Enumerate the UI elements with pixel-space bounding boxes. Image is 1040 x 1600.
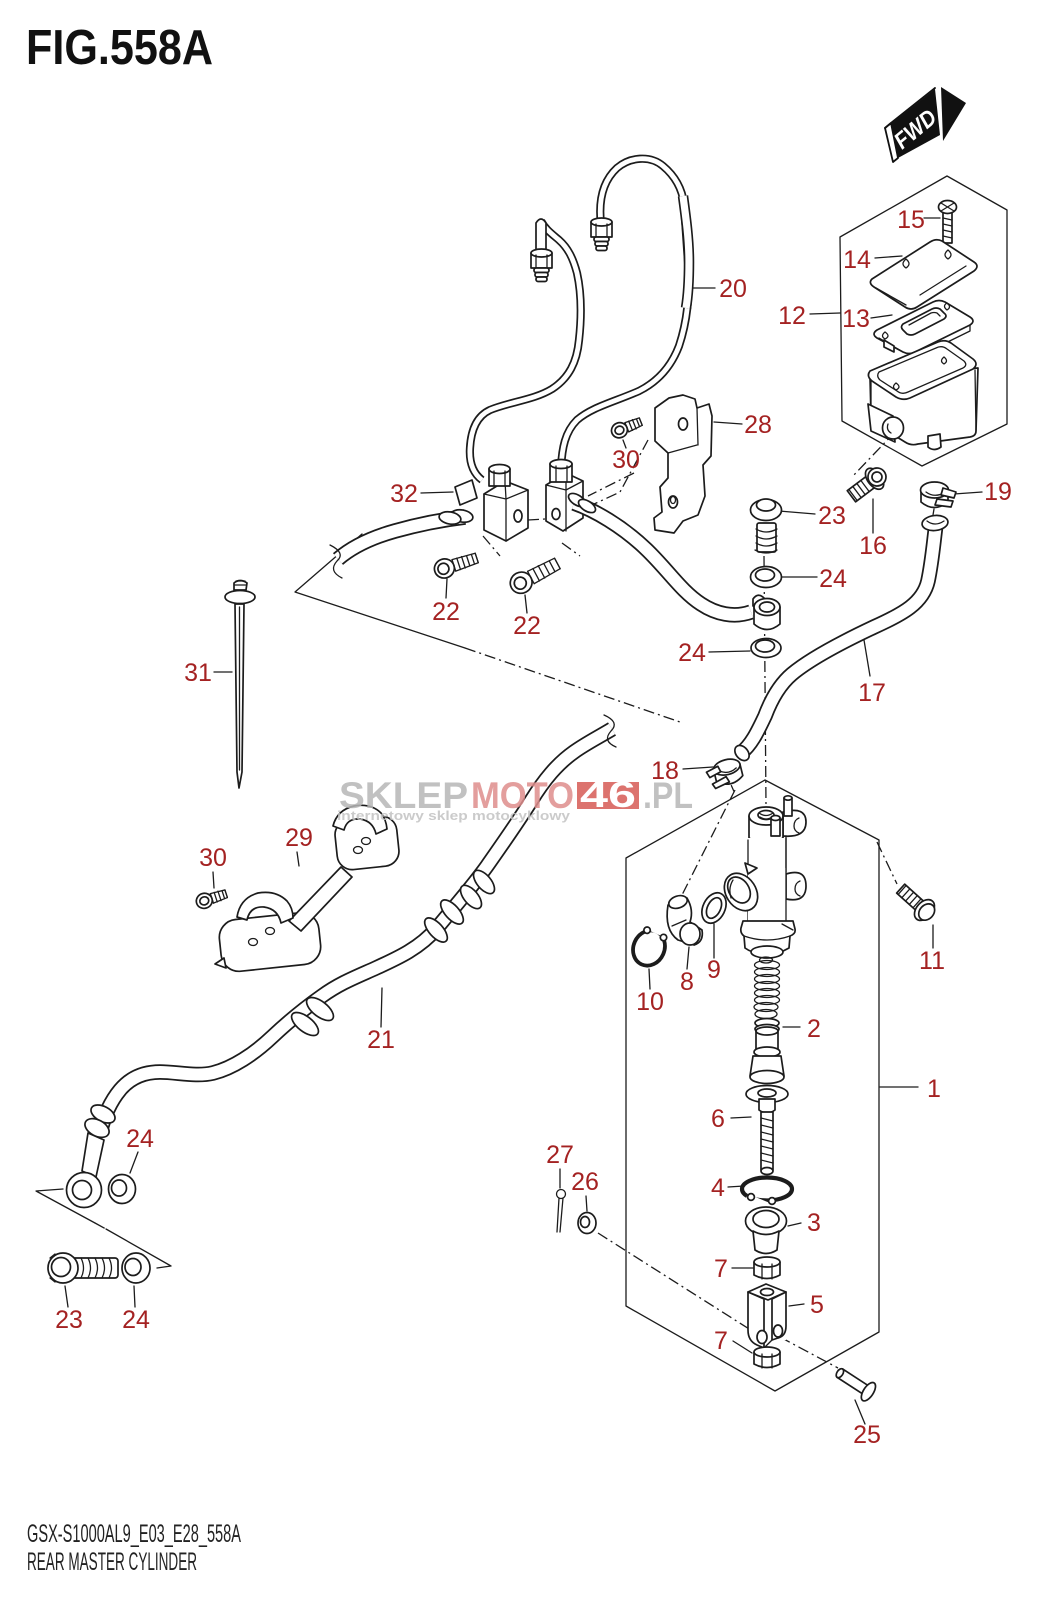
svg-text:46: 46 bbox=[580, 774, 636, 815]
svg-text:REAR MASTER CYLINDER: REAR MASTER CYLINDER bbox=[27, 1548, 197, 1576]
svg-text:4: 4 bbox=[711, 1174, 725, 1202]
svg-text:29: 29 bbox=[285, 824, 313, 852]
svg-text:21: 21 bbox=[367, 1026, 395, 1054]
svg-text:9: 9 bbox=[707, 956, 721, 984]
svg-text:23: 23 bbox=[55, 1306, 83, 1334]
svg-text:22: 22 bbox=[432, 598, 460, 626]
svg-text:GSX-S1000AL9_E03_E28_558A: GSX-S1000AL9_E03_E28_558A bbox=[27, 1520, 241, 1548]
svg-text:2: 2 bbox=[807, 1015, 821, 1043]
svg-text:32: 32 bbox=[390, 480, 418, 508]
svg-text:11: 11 bbox=[919, 947, 945, 975]
svg-text:31: 31 bbox=[184, 659, 212, 687]
svg-text:18: 18 bbox=[651, 757, 679, 785]
svg-text:30: 30 bbox=[612, 446, 640, 474]
svg-text:16: 16 bbox=[859, 532, 887, 560]
svg-text:28: 28 bbox=[744, 411, 772, 439]
svg-text:24: 24 bbox=[678, 639, 706, 667]
svg-text:7: 7 bbox=[714, 1327, 728, 1355]
svg-text:8: 8 bbox=[680, 968, 694, 996]
svg-text:22: 22 bbox=[513, 612, 541, 640]
svg-text:14: 14 bbox=[843, 246, 871, 274]
svg-text:26: 26 bbox=[571, 1168, 599, 1196]
svg-text:internetowy sklep motocyklowy: internetowy sklep motocyklowy bbox=[337, 809, 570, 823]
svg-text:13: 13 bbox=[842, 305, 870, 333]
svg-text:15: 15 bbox=[897, 206, 925, 234]
svg-text:12: 12 bbox=[778, 302, 806, 330]
svg-text:24: 24 bbox=[122, 1306, 150, 1334]
svg-text:5: 5 bbox=[810, 1291, 824, 1319]
svg-text:10: 10 bbox=[636, 988, 664, 1016]
svg-text:7: 7 bbox=[714, 1255, 728, 1283]
svg-text:3: 3 bbox=[807, 1209, 821, 1237]
svg-text:17: 17 bbox=[858, 679, 886, 707]
svg-text:27: 27 bbox=[546, 1141, 574, 1169]
svg-text:30: 30 bbox=[199, 844, 227, 872]
svg-text:FIG.558A: FIG.558A bbox=[26, 21, 213, 75]
svg-text:1: 1 bbox=[927, 1075, 941, 1103]
svg-text:20: 20 bbox=[719, 275, 747, 303]
svg-text:23: 23 bbox=[818, 502, 846, 530]
svg-text:25: 25 bbox=[853, 1421, 881, 1449]
svg-text:6: 6 bbox=[711, 1105, 725, 1133]
svg-text:19: 19 bbox=[984, 478, 1012, 506]
svg-text:24: 24 bbox=[126, 1125, 154, 1153]
svg-text:24: 24 bbox=[819, 565, 847, 593]
